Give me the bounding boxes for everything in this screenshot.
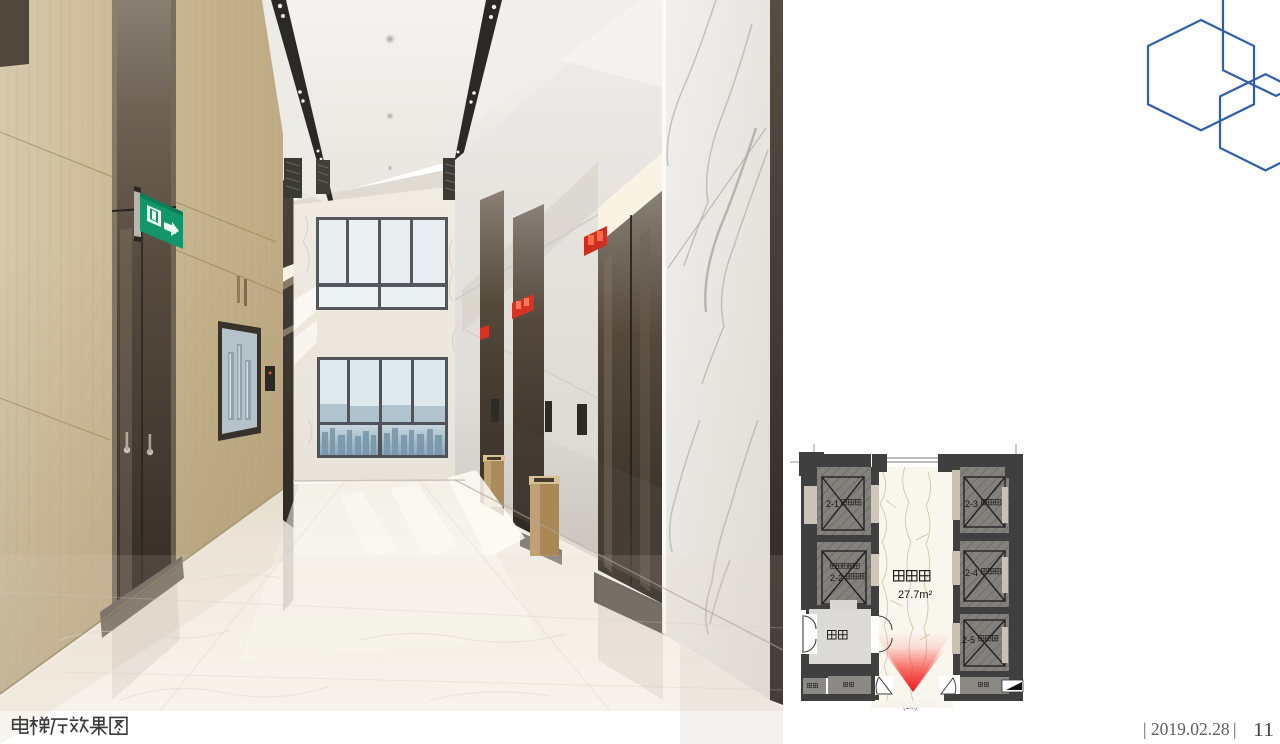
- svg-text:11: 11: [1253, 719, 1274, 741]
- svg-text:2-4: 2-4: [965, 568, 978, 578]
- svg-text:2-3: 2-3: [965, 499, 978, 509]
- svg-text:2-1: 2-1: [826, 499, 839, 509]
- svg-text:|: |: [1233, 719, 1237, 739]
- svg-text:27.7m²: 27.7m²: [898, 589, 933, 601]
- svg-text:2-2: 2-2: [830, 573, 843, 583]
- svg-text:2-5: 2-5: [962, 635, 975, 645]
- svg-text:| 2019.02.28: | 2019.02.28: [1143, 719, 1230, 739]
